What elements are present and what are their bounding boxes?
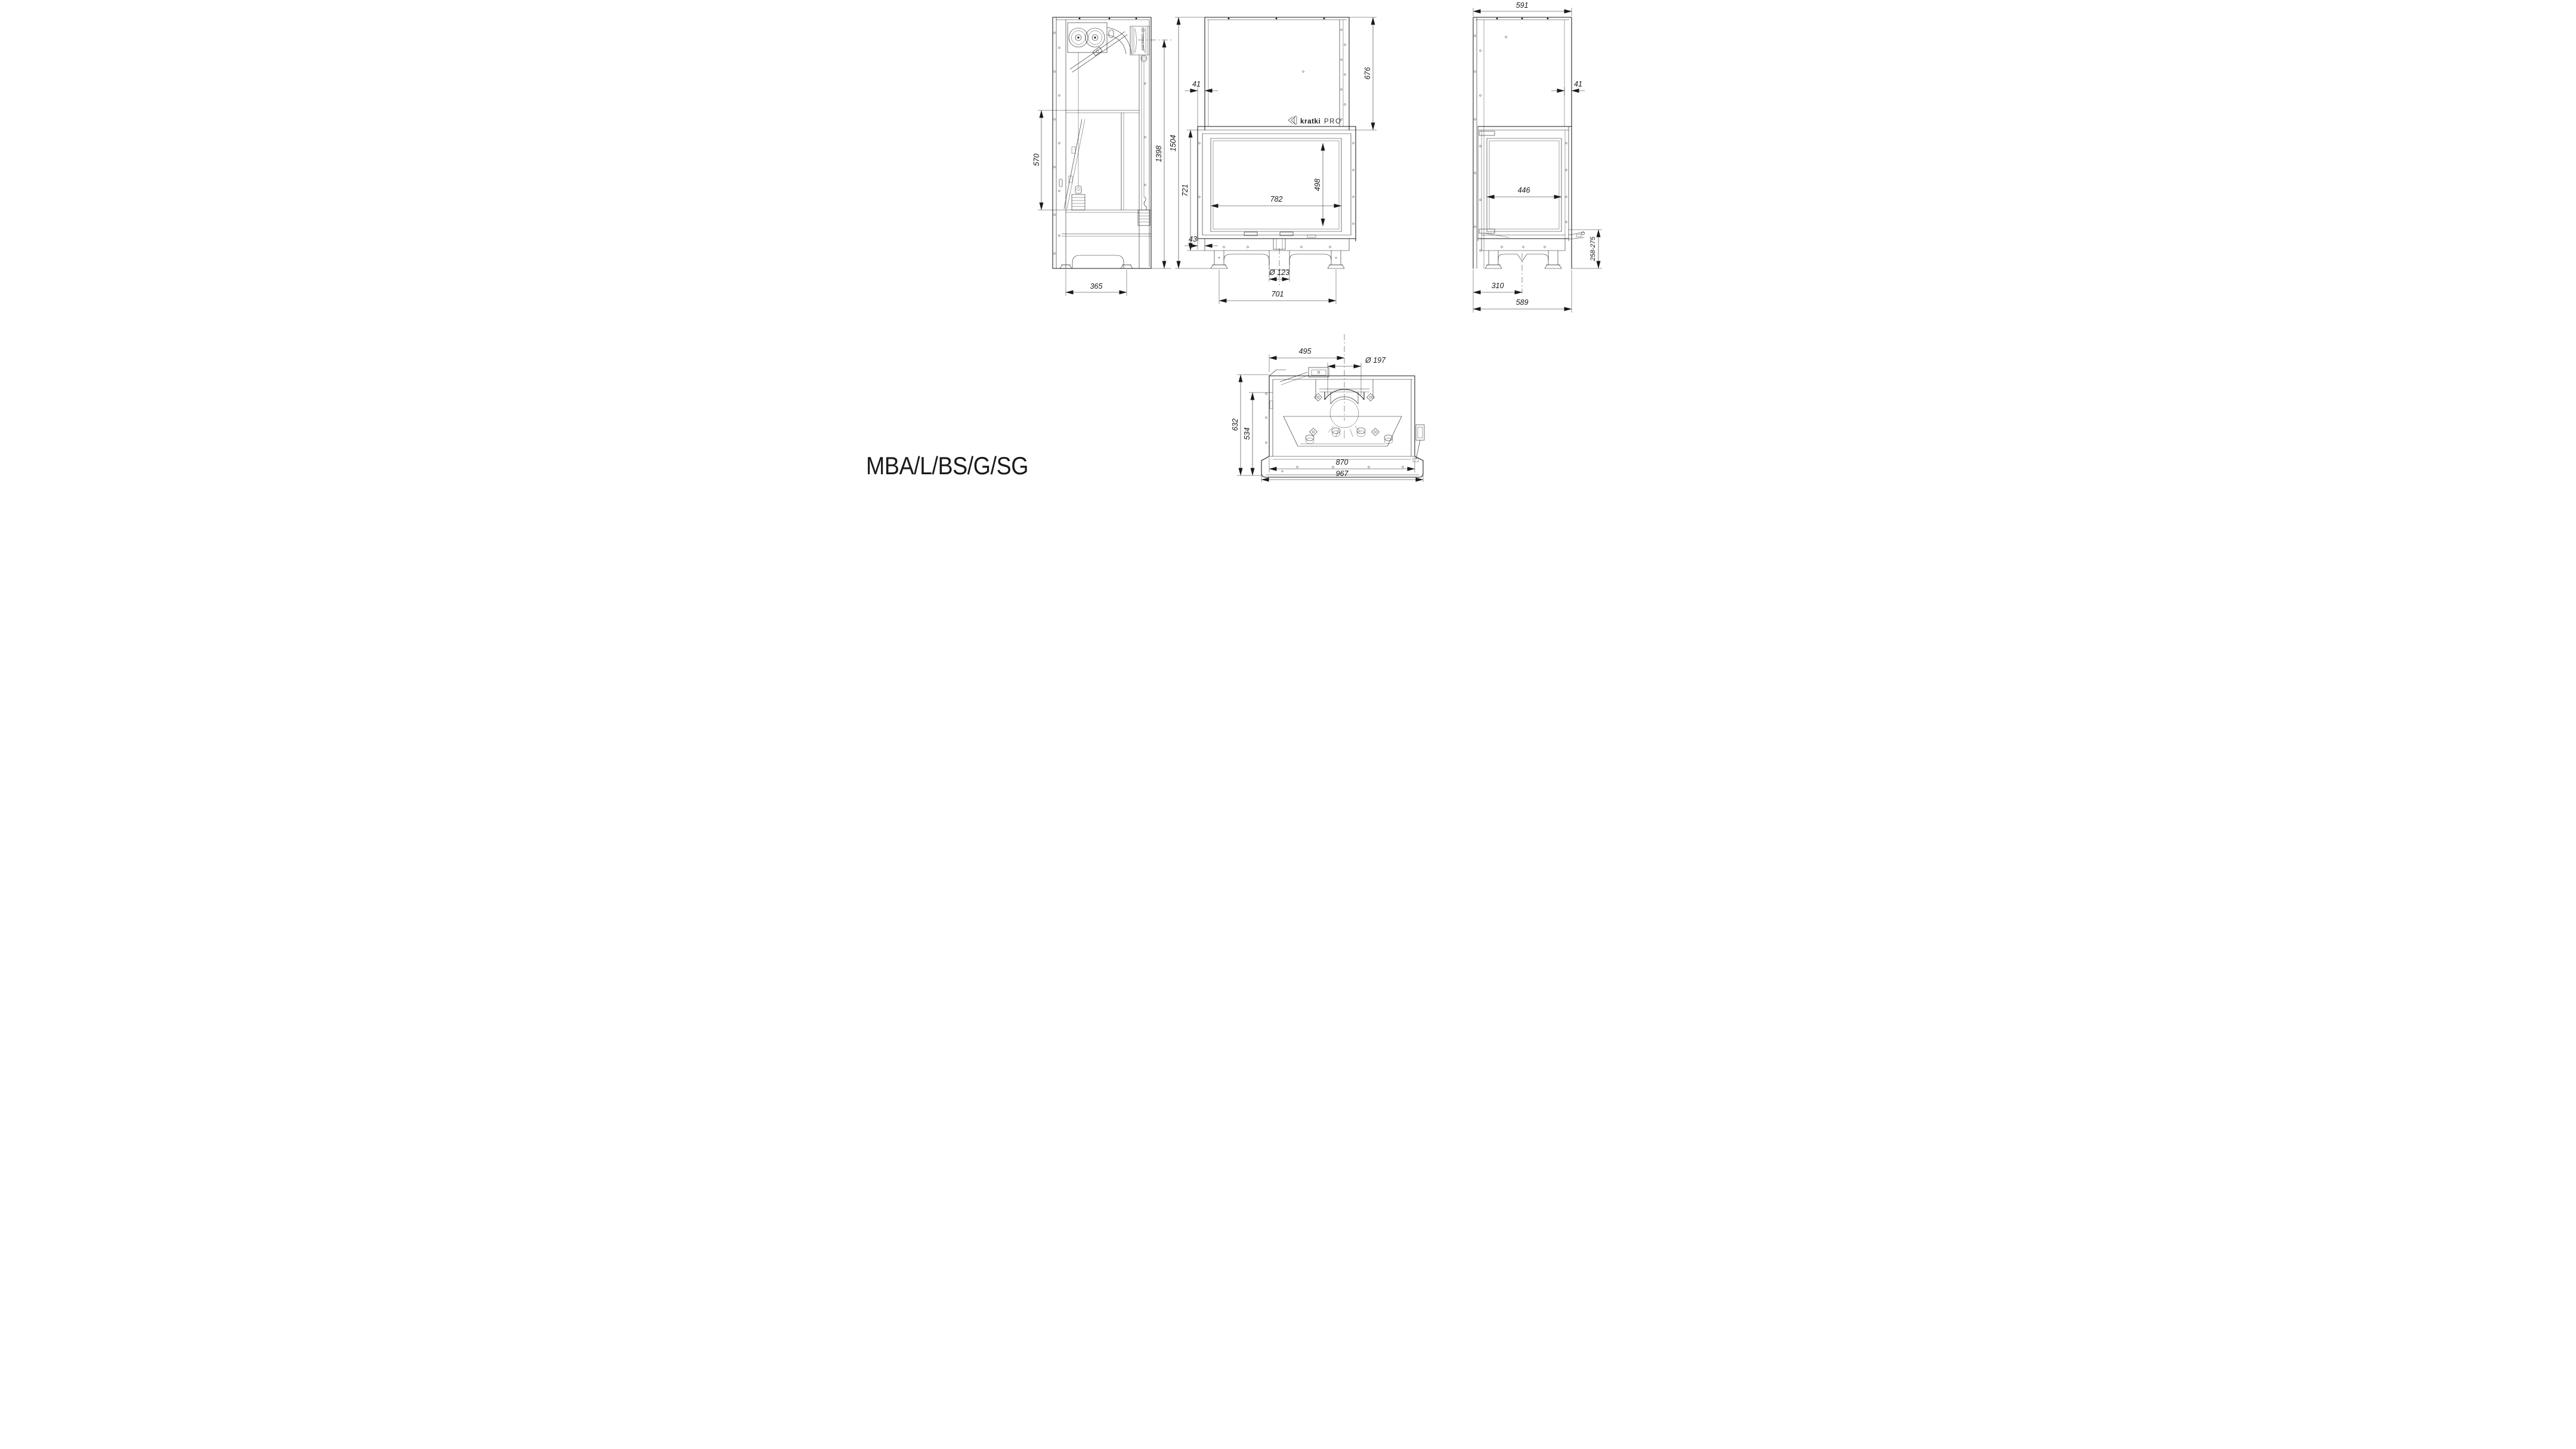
dim-label-41-front: 41	[1192, 80, 1201, 88]
dim-air-inlet-diameter: Ø 123	[1268, 268, 1289, 282]
door-counterweight-center	[1072, 52, 1085, 210]
right-side-view: 591 41 446 258-275 310 589	[1473, 1, 1602, 313]
dim-label-589: 589	[1516, 298, 1528, 307]
dim-glass-width: 782	[1211, 195, 1341, 206]
front-door	[1198, 126, 1356, 241]
dim-rear-offset: 41	[1551, 80, 1585, 95]
dim-bottom-offset: 43	[1185, 235, 1218, 249]
dim-label-870: 870	[1335, 458, 1348, 466]
dim-inner-height: 570	[1032, 110, 1066, 210]
front-legs	[1211, 251, 1344, 268]
front-view: kratki PRO	[1169, 17, 1377, 304]
dim-total-width: 967	[1261, 469, 1423, 482]
dim-label-676: 676	[1363, 67, 1372, 80]
technical-drawing: ND-10201/200	[859, 0, 1718, 483]
dim-body-height: 721	[1181, 130, 1205, 251]
brand-suffix: PRO	[1324, 118, 1341, 125]
dim-label-782: 782	[1270, 195, 1282, 203]
dim-label-1398: 1398	[1155, 146, 1163, 162]
side-section-view: ND-10201/200	[1032, 17, 1171, 296]
dim-base-depth: 589	[1473, 270, 1572, 313]
dim-side-glass-width: 446	[1487, 186, 1561, 197]
convection-fan-assembly	[1068, 23, 1114, 52]
dim-label-446: 446	[1517, 186, 1530, 194]
dim-flue-center-offset: 310	[1473, 270, 1522, 313]
dim-label-721: 721	[1181, 184, 1189, 197]
dim-label-632: 632	[1231, 419, 1239, 431]
dim-label-1504: 1504	[1169, 135, 1177, 152]
dim-label-41-right: 41	[1574, 80, 1582, 88]
rear-panel-screws	[1053, 32, 1062, 255]
firebox-section	[1062, 55, 1151, 268]
brand-logo: kratki PRO	[1288, 116, 1341, 125]
model-label: MBA/L/BS/G/SG	[866, 452, 1028, 480]
dim-label-967: 967	[1335, 469, 1349, 478]
dim-top-offset: 41	[1185, 80, 1218, 126]
dim-glass-height: 498	[1313, 143, 1323, 226]
drawing-sheet: ND-10201/200	[859, 0, 1718, 483]
bottom-interior	[1284, 416, 1402, 446]
dim-base-height-range: 258-275	[1569, 230, 1602, 268]
dim-top-depth: 591	[1473, 1, 1572, 16]
flue-collar	[1309, 334, 1379, 438]
front-plinth	[1205, 239, 1349, 251]
flue-duct	[1070, 27, 1131, 72]
dim-label-591: 591	[1516, 1, 1528, 10]
dim-label-d197: Ø 197	[1365, 356, 1386, 364]
dim-base-width: 365	[1066, 270, 1127, 296]
dim-label-d123: Ø 123	[1268, 268, 1289, 277]
dim-label-498: 498	[1313, 179, 1322, 191]
part-number-label: ND-10201/200	[1140, 27, 1144, 51]
bottom-body-outline	[1265, 370, 1414, 456]
bottom-view: 495 Ø 197 632 534 870	[1231, 334, 1424, 482]
dim-hood-height: 676	[1349, 17, 1377, 130]
dim-label-365: 365	[1090, 282, 1102, 291]
front-hood	[1205, 17, 1349, 130]
flue-connector: ND-10201/200	[1130, 26, 1149, 55]
door-handle	[1569, 232, 1585, 240]
dim-label-43: 43	[1189, 235, 1197, 243]
side-base-feet	[1060, 255, 1133, 268]
dim-label-258-275: 258-275	[1589, 236, 1597, 261]
dim-label-570: 570	[1032, 154, 1041, 166]
air-inlet-tube	[1269, 248, 1289, 285]
dim-label-310: 310	[1491, 282, 1504, 290]
dim-total-depth: 632	[1231, 375, 1269, 475]
dim-flue-center-from-front: 495	[1269, 347, 1344, 372]
dim-label-495: 495	[1298, 347, 1311, 356]
dim-body-depth: 534	[1243, 393, 1273, 475]
right-body-outline	[1473, 17, 1572, 268]
dim-label-701: 701	[1271, 290, 1284, 298]
dim-flue-height: 1398	[1138, 40, 1171, 268]
door-counterweight-right	[1138, 55, 1150, 225]
dim-label-534: 534	[1243, 428, 1251, 440]
brand-name: kratki	[1300, 118, 1321, 125]
side-glass-door	[1478, 126, 1572, 241]
